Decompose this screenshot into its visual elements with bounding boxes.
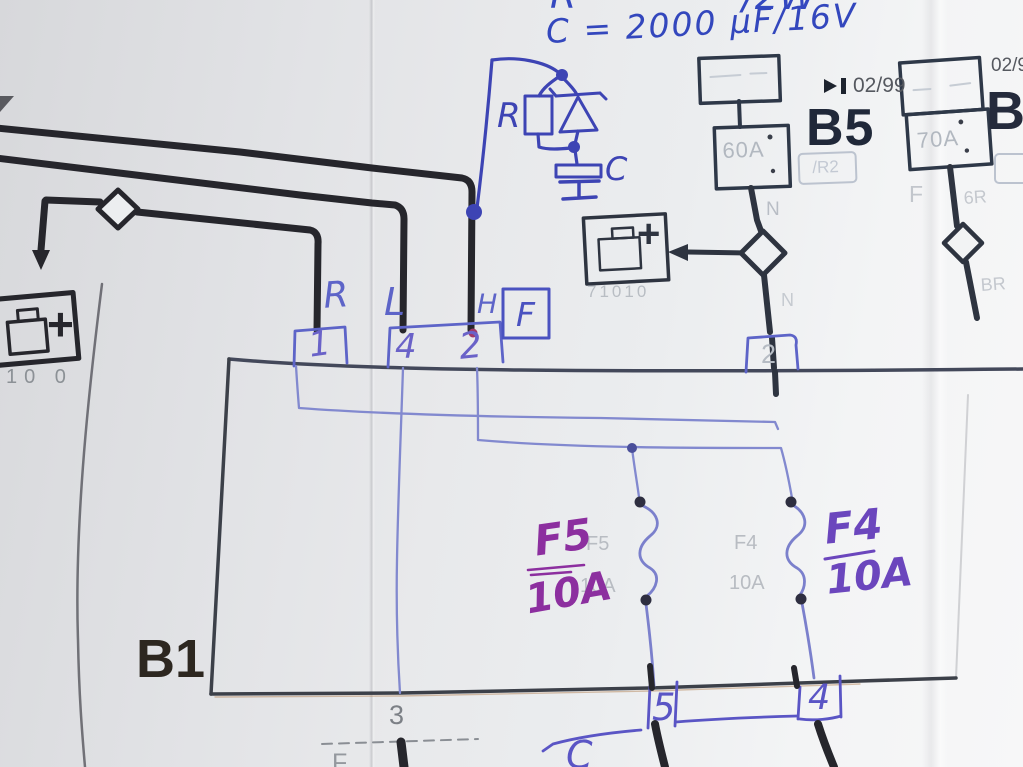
diamond-connector-icon [98,190,138,228]
bottom-black-wire-4 [818,724,834,767]
wiring-diagram-photo: R /2W C = 2000 µF/16V R C R L H F 1 4 2 … [0,0,1023,767]
fuse-f4-bottom-dot [796,594,807,605]
bottom-terminal-5: 5 [652,686,676,729]
left-battery-icon [7,319,48,354]
bottom-blue-link-line-2 [676,716,797,722]
b9-wire-down2 [966,262,977,318]
b9-left-letter: F [909,181,923,208]
b9-label: B9 [986,80,1023,142]
fuse-f4-lower-lead [802,603,814,678]
fuse-f5-bottom-dot [641,595,652,606]
bottom-black-stub-3 [401,742,404,767]
rc-resistor-lead-bottom [538,134,571,149]
blue-wire-4-down [397,368,403,693]
center-battery-code: 71010 [587,282,649,302]
printed-f4-label: F4 [734,532,757,555]
wire-code-br: BR [980,273,1006,296]
rc-top-node-blob [556,69,568,81]
b5-box-stem [739,101,740,127]
b9-dot-1 [958,119,963,124]
bottom-black-stub-4 [794,668,797,686]
b5-wire-down [751,188,761,231]
b5-upper-box-faint-marks [710,73,766,77]
b9-fuse-rating: 70A [916,125,960,154]
play-marker-icon [824,79,837,93]
bottom-black-wire-5 [655,724,665,767]
fuse-f4-squiggle [787,504,805,595]
hand-f4-name: F4 [822,499,885,554]
wire-battery-r-h [46,200,318,330]
terminal-number-2: 2 [457,325,484,368]
wire-code-n-lower: N [781,290,794,311]
wire-code-6r: 6R [963,186,987,209]
blue-wire-1-to-b5line [296,366,778,429]
capacitor-plate-top [556,165,601,177]
b1-box-right-edge [956,395,968,678]
fuse-f4-top-dot [786,497,797,508]
bottom-letter-c: C [566,733,593,767]
b5-dot-1 [768,135,773,140]
arrow-left-icon [668,244,688,261]
center-battery-plus-icon: + [637,212,660,257]
blue-wire-2-to-fuses [477,368,792,498]
b1-label: B1 [136,628,205,690]
fuse-f5-squiggle [640,505,657,596]
b5-ref: /R2 [812,157,839,178]
fuse-f5-top-dot [635,497,646,508]
f-box-label: F [516,295,535,334]
center-battery-icon [599,237,642,270]
rc-diode-lead-top [564,79,576,93]
b5-fuse-rating: 60A [722,137,765,164]
rc-junction-blob [466,204,482,220]
b9-upper-box-faint-marks [913,83,970,90]
rc-capacitor-label: C [605,150,627,188]
left-battery-plus-icon: + [47,297,74,351]
wire-code-n-upper: N [766,199,780,221]
blue-wire-f5-drop [632,448,639,497]
b1-box-left-edge [211,359,229,694]
bottom-black-stub-5 [650,666,652,688]
rc-resistor-lead-top [539,76,560,96]
arrow-down-icon [32,250,50,270]
wire-battery-down [41,201,45,250]
resistor-symbol [525,96,552,134]
diode-triangle-symbol [560,97,597,132]
terminal-letter-h: H [477,289,497,320]
b9-dot-2 [965,148,970,153]
corner-shadow [0,96,14,112]
b9-upper-box [900,57,983,114]
b9-date: 02/9 [991,55,1023,77]
blue-junction-dot [627,443,637,453]
rc-resistor-label: R [497,96,521,136]
hand-f4-rating: 10A [824,549,915,604]
terminal-number-2-right-printed: 2 [761,339,776,370]
printed-f4-rating: 10A [729,572,765,595]
terminal-letter-r: R [322,274,350,317]
bottom-printed-f: F [332,749,347,767]
rc-left-lead [477,60,492,208]
marker-bar-icon [841,78,846,94]
bottom-printed-3: 3 [389,700,404,731]
hand-f5-name: F5 [531,509,595,566]
capacitor-stem [563,183,596,199]
b5-diamond-icon [741,231,785,275]
b9-ref-box [995,154,1023,183]
b1-box-bottom-edge [211,678,956,694]
terminal-letter-l: L [384,280,405,324]
rc-bottom-node-blob [568,141,580,153]
center-battery-cap-icon [612,228,633,239]
b9-diamond-icon [944,224,982,262]
rc-top-wire [492,59,558,72]
b5-upper-box [699,56,781,104]
b5-date: 02/99 [853,74,906,98]
b5-wire-down2 [764,275,776,394]
b5-dot-2 [771,169,775,173]
b5-label: B5 [806,98,874,158]
left-battery-code: 10 0 [6,366,73,389]
bottom-terminal-4: 4 [808,678,830,718]
b9-wire-down [950,167,957,226]
terminal-number-4: 4 [395,327,417,367]
